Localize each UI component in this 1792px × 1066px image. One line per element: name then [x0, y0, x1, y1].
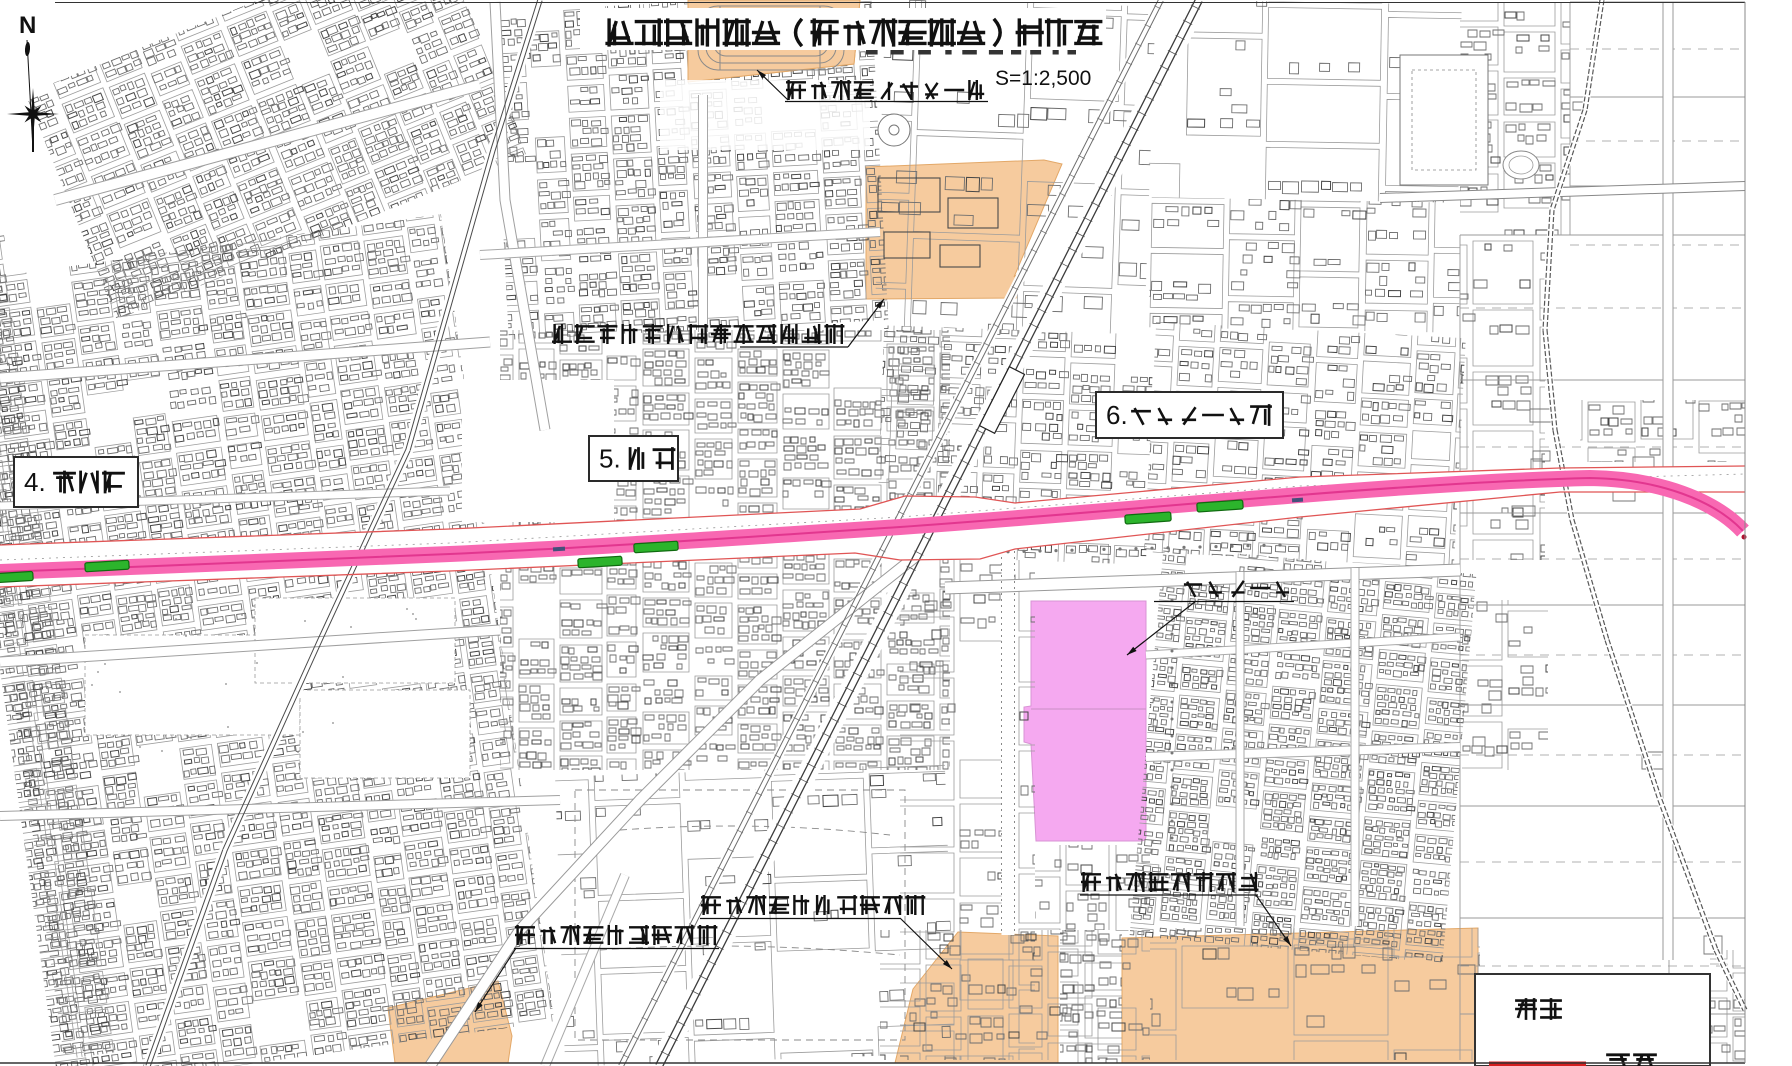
- svg-text:6.: 6.: [1106, 400, 1128, 430]
- svg-text:5.: 5.: [599, 444, 621, 474]
- svg-text:N: N: [19, 12, 36, 39]
- svg-text:S=1:2,500: S=1:2,500: [995, 67, 1091, 90]
- svg-text:4.: 4.: [24, 467, 46, 497]
